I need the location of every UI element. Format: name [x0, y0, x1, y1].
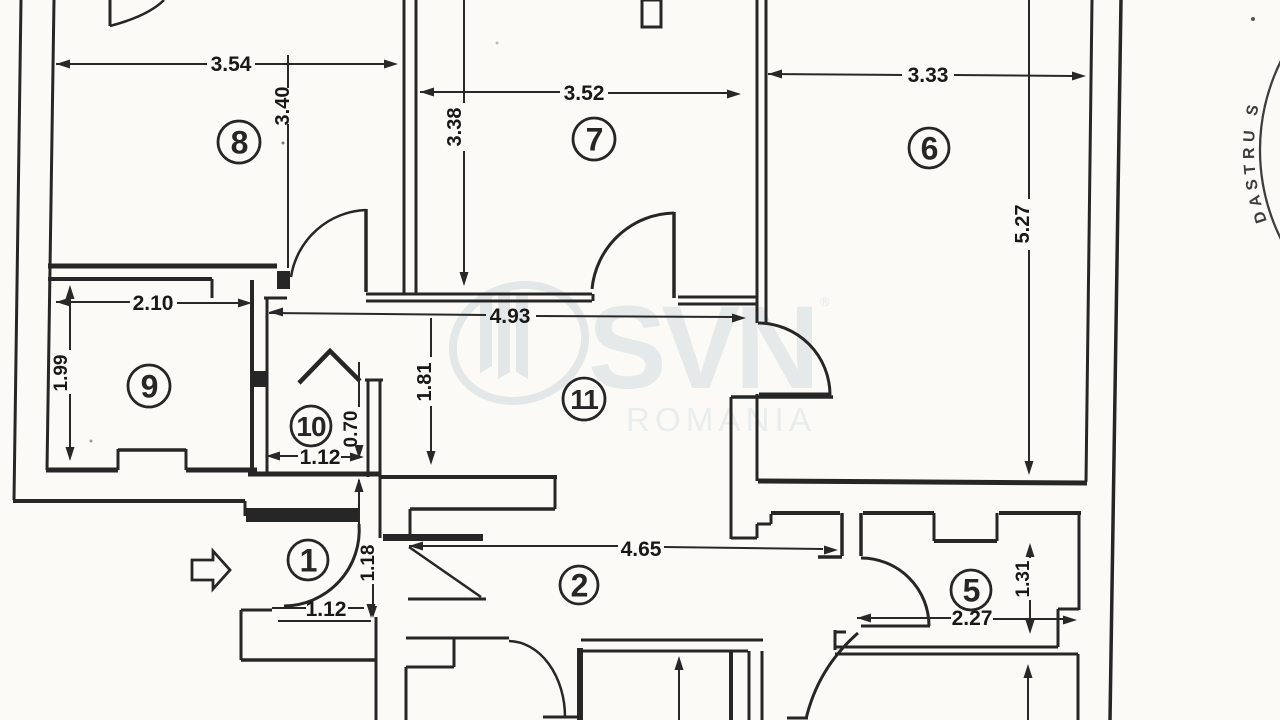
svg-text:2.10: 2.10: [133, 292, 174, 315]
svg-text:5.27: 5.27: [1012, 205, 1034, 244]
svg-text:1: 1: [300, 543, 317, 579]
svg-text:1.81: 1.81: [414, 363, 436, 402]
svg-text:1.18: 1.18: [358, 545, 379, 582]
svg-text:®: ®: [820, 294, 830, 309]
svg-text:2: 2: [571, 568, 588, 604]
svg-text:1.31: 1.31: [1013, 560, 1034, 597]
svg-text:1.12: 1.12: [300, 446, 341, 469]
svg-text:10: 10: [296, 411, 326, 442]
svg-text:5: 5: [963, 573, 980, 609]
svg-text:3.40: 3.40: [272, 87, 294, 126]
svg-text:1.12: 1.12: [306, 598, 347, 621]
svg-text:11: 11: [570, 384, 598, 415]
svg-text:ROMANIA: ROMANIA: [626, 401, 816, 438]
svg-text:7: 7: [586, 122, 603, 158]
svg-text:3.33: 3.33: [908, 64, 949, 87]
svg-text:0.70: 0.70: [341, 411, 362, 448]
svg-text:3.54: 3.54: [211, 53, 252, 76]
svg-text:9: 9: [141, 369, 158, 405]
svg-text:8: 8: [231, 125, 248, 161]
svg-text:4.93: 4.93: [490, 305, 531, 328]
svg-text:3.38: 3.38: [444, 108, 466, 147]
svg-text:3.52: 3.52: [564, 82, 605, 105]
svg-text:4.65: 4.65: [621, 538, 662, 561]
svg-text:1.99: 1.99: [51, 355, 72, 392]
svg-text:6: 6: [921, 131, 938, 167]
